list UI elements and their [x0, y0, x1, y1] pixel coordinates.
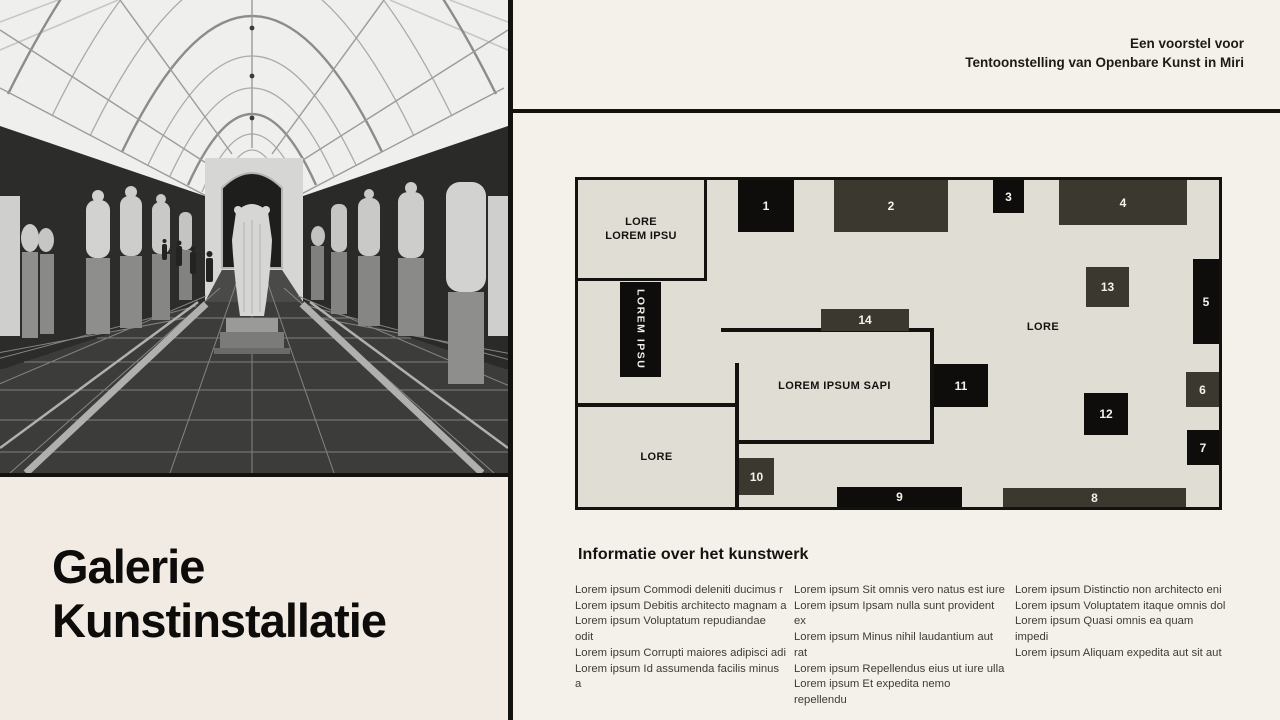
info-line: Lorem ipsum Voluptatum repudiandae odit [575, 614, 787, 645]
artwork-box-14: 14 [821, 309, 909, 331]
header-rule [513, 109, 1280, 113]
vertical-wall-label: LOREM IPSU [620, 282, 661, 377]
room-top-left: LORE LOREM IPSU [575, 177, 707, 281]
info-line: Lorem ipsum Commodi deleniti ducimus r [575, 583, 787, 599]
artwork-box-1: 1 [738, 180, 794, 232]
artwork-box-4: 4 [1059, 180, 1187, 225]
info-line: Lorem ipsum Ipsam nulla sunt provident e… [794, 599, 1006, 630]
floor-plan: LORE LOREM IPSU LOREM IPSU LOREM IPSUM S… [575, 177, 1222, 510]
artwork-box-9: 9 [837, 487, 962, 507]
gallery-photo-illustration [0, 0, 508, 473]
open-area-label: LORE [988, 318, 1098, 336]
info-line: Lorem ipsum Distinctio non architecto en… [1015, 583, 1227, 599]
artwork-box-6: 6 [1186, 372, 1219, 407]
info-line: Lorem ipsum Aliquam expedita aut sit aut [1015, 646, 1227, 662]
info-heading: Informatie over het kunstwerk [578, 546, 809, 564]
room-top-left-label-line1: LORE [625, 215, 657, 229]
info-column-3: Lorem ipsum Distinctio non architecto en… [1015, 583, 1227, 662]
info-line: Lorem ipsum Corrupti maiores adipisci ad… [575, 646, 787, 662]
left-panel: Galerie Kunstinstallatie [0, 0, 508, 720]
artwork-box-11: 11 [934, 364, 988, 407]
slide-root: Galerie Kunstinstallatie Een voorstel vo… [0, 0, 1280, 720]
info-line: Lorem ipsum Voluptatem itaque omnis dol [1015, 599, 1227, 615]
gallery-photo [0, 0, 508, 477]
info-line: Lorem ipsum Id assumenda facilis minus a [575, 662, 787, 693]
proposal-header-line2: Tentoonstelling van Openbare Kunst in Mi… [965, 53, 1244, 72]
artwork-box-3: 3 [993, 180, 1024, 213]
room-top-left-label-line2: LOREM IPSU [605, 229, 676, 243]
artwork-box-2: 2 [834, 180, 948, 232]
artwork-box-7: 7 [1187, 430, 1219, 465]
page-title-line1: Galerie [52, 540, 386, 594]
page-title: Galerie Kunstinstallatie [52, 540, 386, 648]
artwork-box-5: 5 [1193, 259, 1219, 344]
info-line: Lorem ipsum Repellendus eius ut iure ull… [794, 662, 1006, 678]
info-column-1: Lorem ipsum Commodi deleniti ducimus r L… [575, 583, 787, 693]
info-line: Lorem ipsum Debitis architecto magnam a [575, 599, 787, 615]
info-line: Lorem ipsum Et expedita nemo repellendu [794, 677, 1006, 708]
info-line: Lorem ipsum Sit omnis vero natus est iur… [794, 583, 1006, 599]
wall-center-room-bottom [735, 440, 934, 444]
proposal-header-line1: Een voorstel voor [965, 34, 1244, 53]
info-line: Lorem ipsum Minus nihil laudantium aut r… [794, 630, 1006, 661]
center-room-label: LOREM IPSUM SAPI [739, 332, 930, 440]
right-panel: Een voorstel voor Tentoonstelling van Op… [513, 0, 1280, 720]
artwork-box-10: 10 [739, 458, 774, 495]
proposal-header: Een voorstel voor Tentoonstelling van Op… [965, 34, 1244, 72]
artwork-box-13: 13 [1086, 267, 1129, 307]
artwork-box-8: 8 [1003, 488, 1186, 507]
page-title-line2: Kunstinstallatie [52, 594, 386, 648]
artwork-box-12: 12 [1084, 393, 1128, 435]
bottom-left-room-label: LORE [578, 407, 735, 507]
info-column-2: Lorem ipsum Sit omnis vero natus est iur… [794, 583, 1006, 709]
info-line: Lorem ipsum Quasi omnis ea quam impedi [1015, 614, 1227, 645]
